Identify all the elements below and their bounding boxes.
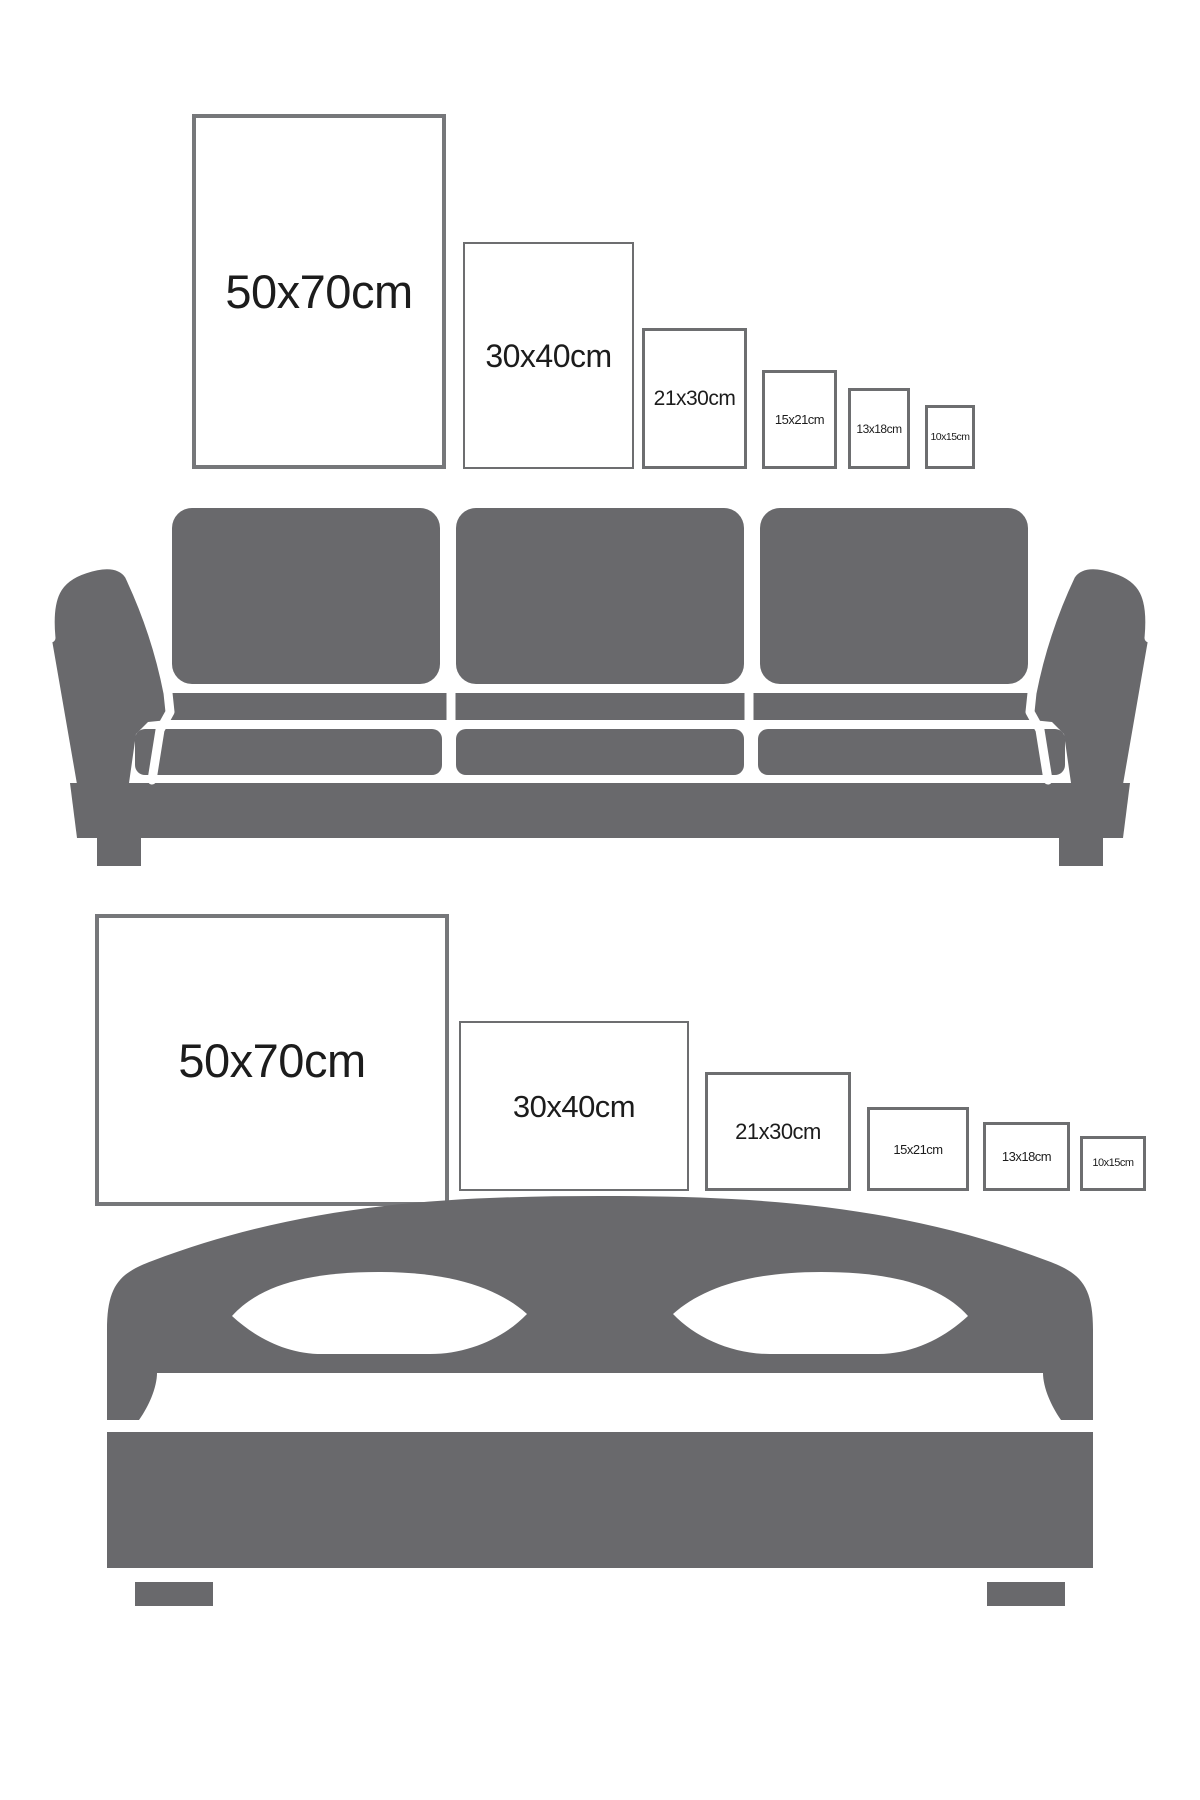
frame-21x30-portrait: 21x30cm bbox=[642, 328, 747, 469]
frame-size-label: 21x30cm bbox=[654, 388, 736, 409]
frame-10x15-portrait: 10x15cm bbox=[925, 405, 975, 469]
frame-15x21-portrait: 15x21cm bbox=[762, 370, 837, 469]
frame-size-label: 30x40cm bbox=[485, 340, 611, 372]
frame-50x70-landscape: 50x70cm bbox=[95, 914, 449, 1206]
frame-size-label: 15x21cm bbox=[775, 413, 824, 426]
frame-30x40-landscape: 30x40cm bbox=[459, 1021, 689, 1191]
sofa-icon bbox=[0, 490, 1200, 910]
frame-size-label: 50x70cm bbox=[225, 268, 412, 315]
frame-50x70-portrait: 50x70cm bbox=[192, 114, 446, 469]
frame-15x21-landscape: 15x21cm bbox=[867, 1107, 969, 1191]
frame-size-label: 50x70cm bbox=[178, 1037, 365, 1084]
frame-size-label: 13x18cm bbox=[856, 423, 901, 435]
frame-size-label: 21x30cm bbox=[735, 1121, 821, 1143]
poster-size-guide: 50x70cm 30x40cm 21x30cm 15x21cm 13x18cm … bbox=[0, 0, 1200, 1800]
frame-size-label: 10x15cm bbox=[930, 432, 969, 443]
frame-size-label: 10x15cm bbox=[1092, 1158, 1133, 1169]
frame-size-label: 15x21cm bbox=[893, 1143, 942, 1156]
frame-30x40-portrait: 30x40cm bbox=[463, 242, 634, 469]
frame-size-label: 13x18cm bbox=[1002, 1150, 1051, 1163]
frame-21x30-landscape: 21x30cm bbox=[705, 1072, 851, 1191]
bed-icon bbox=[0, 1180, 1200, 1620]
frame-13x18-portrait: 13x18cm bbox=[848, 388, 910, 469]
frame-size-label: 30x40cm bbox=[513, 1091, 635, 1122]
